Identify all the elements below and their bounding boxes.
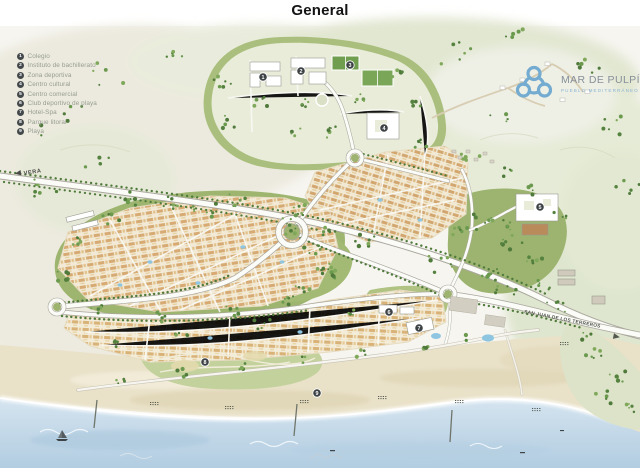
legend-number-badge: 2	[17, 62, 24, 69]
legend-number-badge: 1	[17, 53, 24, 60]
svg-text:3: 3	[349, 63, 352, 69]
map-legend: 1Colegio2Instituto de bachillerato3Zona …	[17, 53, 97, 138]
legend-label: Centro comercial	[28, 91, 78, 98]
legend-number-badge: 8	[17, 119, 24, 126]
map-marker-9: 9	[313, 389, 321, 397]
legend-item-1: 1Colegio	[17, 53, 97, 60]
legend-item-9: 9Playa	[17, 128, 97, 135]
legend-number-badge: 6	[17, 100, 24, 107]
svg-text:5: 5	[539, 205, 542, 211]
legend-number-badge: 3	[17, 72, 24, 79]
legend-item-8: 8Parque litoral	[17, 119, 97, 126]
map-marker-2: 2	[297, 67, 305, 75]
legend-label: Colegio	[28, 53, 50, 60]
legend-item-6: 6Club deportivo de playa	[17, 100, 97, 107]
legend-label: Instituto de bachillerato	[28, 62, 96, 69]
legend-label: Playa	[28, 128, 45, 135]
svg-text:2: 2	[300, 69, 303, 75]
map-marker-4: 4	[380, 124, 388, 132]
legend-number-badge: 7	[17, 109, 24, 116]
triskelion-icon	[511, 60, 557, 106]
brand-tagline: PUEBLO MEDITERRÁNEO	[561, 88, 640, 93]
svg-text:6: 6	[388, 310, 391, 316]
map-marker-1: 1	[259, 73, 267, 81]
legend-number-badge: 9	[17, 128, 24, 135]
svg-text:9: 9	[316, 391, 319, 397]
map-marker-7: 7	[415, 324, 423, 332]
brand-logo: MAR DE PULPÍ PUEBLO MEDITERRÁNEO	[511, 60, 639, 106]
svg-text:8: 8	[204, 360, 207, 366]
legend-item-2: 2Instituto de bachillerato	[17, 62, 97, 69]
legend-label: Zona deportiva	[28, 72, 72, 79]
map-marker-3: 3	[346, 61, 354, 69]
svg-text:1: 1	[262, 75, 265, 81]
svg-text:4: 4	[383, 126, 386, 132]
map-marker-8: 8	[201, 358, 209, 366]
svg-text:7: 7	[418, 326, 421, 332]
legend-item-5: 5Centro comercial	[17, 91, 97, 98]
legend-label: Centro cultural	[28, 81, 71, 88]
page-title: General	[0, 2, 640, 19]
legend-label: Hotel-Spa	[28, 109, 57, 116]
legend-number-badge: 4	[17, 81, 24, 88]
legend-item-4: 4Centro cultural	[17, 81, 97, 88]
legend-label: Club deportivo de playa	[28, 100, 97, 107]
legend-item-3: 3Zona deportiva	[17, 72, 97, 79]
legend-label: Parque litoral	[28, 119, 67, 126]
map-marker-6: 6	[385, 308, 393, 316]
legend-item-7: 7Hotel-Spa	[17, 109, 97, 116]
legend-number-badge: 5	[17, 91, 24, 98]
map-marker-5: 5	[536, 203, 544, 211]
brand-name: MAR DE PULPÍ	[561, 74, 640, 86]
